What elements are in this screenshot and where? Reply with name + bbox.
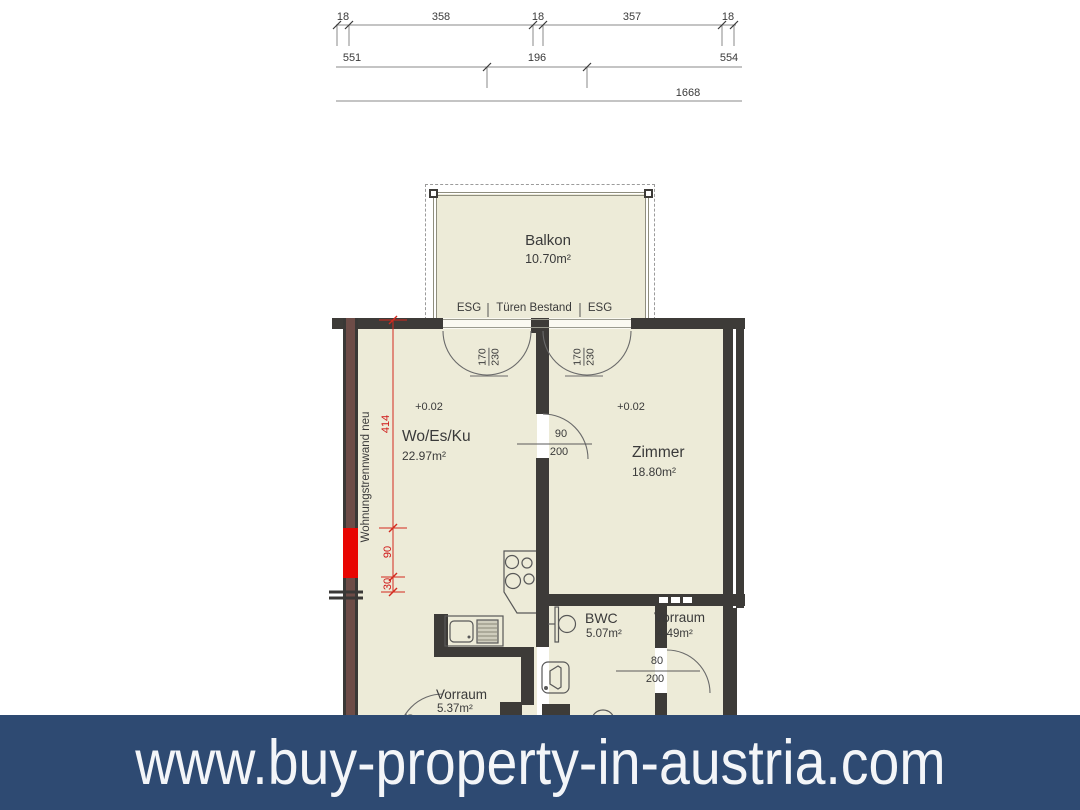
door-height: 230 [585, 348, 597, 366]
glazing-left-label: ESG [457, 302, 481, 314]
partition-wall-label: Wohnungstrennwand neu [360, 412, 372, 543]
stove-burners [506, 556, 535, 589]
bedroom-door-width: 90 [555, 428, 567, 440]
washing-machine [542, 662, 569, 693]
dim-18c: 18 [722, 11, 734, 23]
hall-door-height: 200 [646, 673, 664, 685]
hall-right-name: Vorraum [654, 610, 705, 625]
hall-bottom-area: 5.37m² [437, 703, 473, 715]
bedroom-door-height: 200 [550, 446, 568, 458]
bedroom-name: Zimmer [632, 444, 685, 462]
red-dim-90: 90 [382, 546, 394, 558]
website-banner: www.buy-property-in-austria.com [0, 715, 1080, 810]
dim-357: 357 [623, 11, 641, 23]
living-name: Wo/Es/Ku [402, 428, 471, 446]
bwc-area: 5.07m² [586, 628, 622, 640]
hall-door-width: 80 [651, 655, 663, 667]
living-level: +0.02 [415, 401, 443, 413]
hall-right-area: 4.49m² [657, 628, 693, 640]
balcony-name: Balkon [525, 232, 571, 249]
dim-551: 551 [343, 52, 361, 64]
dim-row-1 [336, 25, 736, 46]
balcony-door-right-size: 170 230 [571, 348, 596, 366]
living-area: 22.97m² [402, 449, 446, 463]
dim-18b: 18 [532, 11, 544, 23]
balcony-area: 10.70m² [525, 252, 571, 266]
hall-bottom-name: Vorraum [436, 687, 487, 702]
bwc-name: BWC [585, 610, 618, 626]
glazing-center-label: Türen Bestand [496, 302, 571, 314]
partition-lintel-marks [329, 592, 363, 598]
red-dim-30: 30 [382, 578, 394, 590]
dim-358: 358 [432, 11, 450, 23]
threshold-lines [443, 320, 631, 328]
bedroom-area: 18.80m² [632, 465, 676, 479]
balcony-door-left-size: 170 230 [476, 348, 501, 366]
bedroom-level: +0.02 [617, 401, 645, 413]
washbasin [548, 607, 576, 642]
website-url: www.buy-property-in-austria.com [135, 727, 945, 799]
door-width: 170 [476, 348, 488, 366]
door-height: 230 [490, 348, 502, 366]
kitchen-sink [450, 620, 498, 643]
dim-18a: 18 [337, 11, 349, 23]
dim-row-2 [336, 67, 742, 88]
door-width: 170 [571, 348, 583, 366]
red-dim-414: 414 [380, 415, 392, 433]
floor-plan-page: 18 358 18 357 18 551 196 554 1668 Balkon… [0, 0, 1080, 810]
dim-196: 196 [528, 52, 546, 64]
dim-554: 554 [720, 52, 738, 64]
dim-1668: 1668 [676, 87, 700, 99]
floor-plan-linework [0, 0, 1080, 810]
balcony-door-swings [443, 331, 631, 376]
glazing-right-label: ESG [588, 302, 612, 314]
